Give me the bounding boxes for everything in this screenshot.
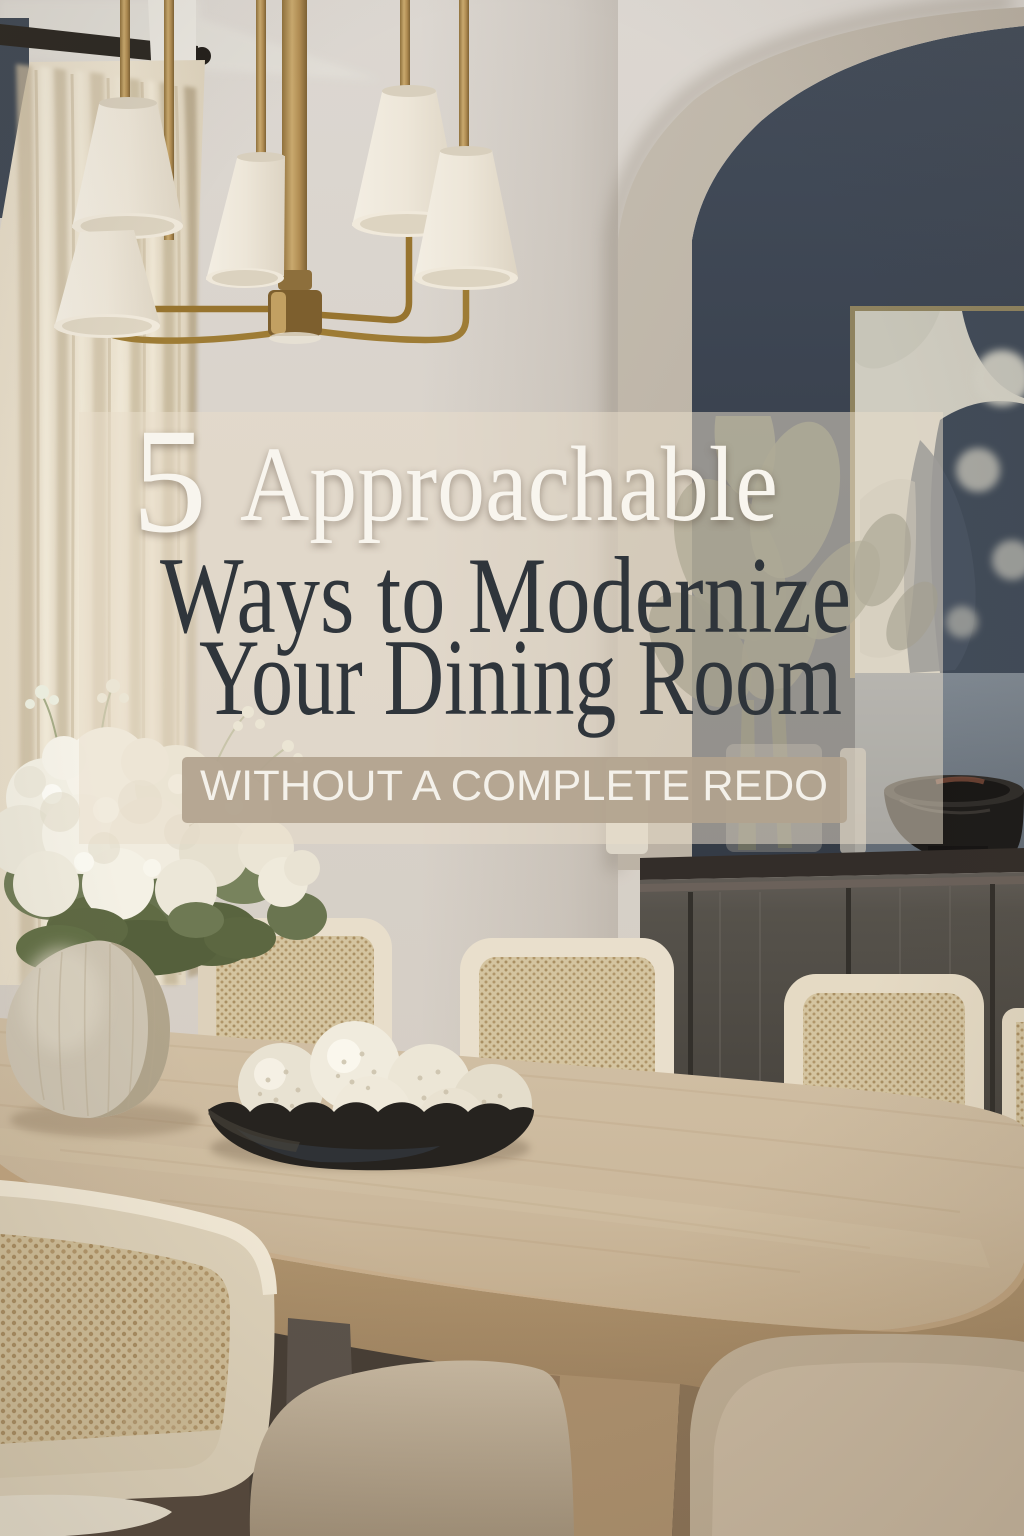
svg-text:Your Dining Room: Your Dining Room [199, 617, 842, 738]
svg-text:Approachable: Approachable [240, 426, 778, 544]
svg-text:WITHOUT A COMPLETE REDO: WITHOUT A COMPLETE REDO [200, 762, 828, 810]
